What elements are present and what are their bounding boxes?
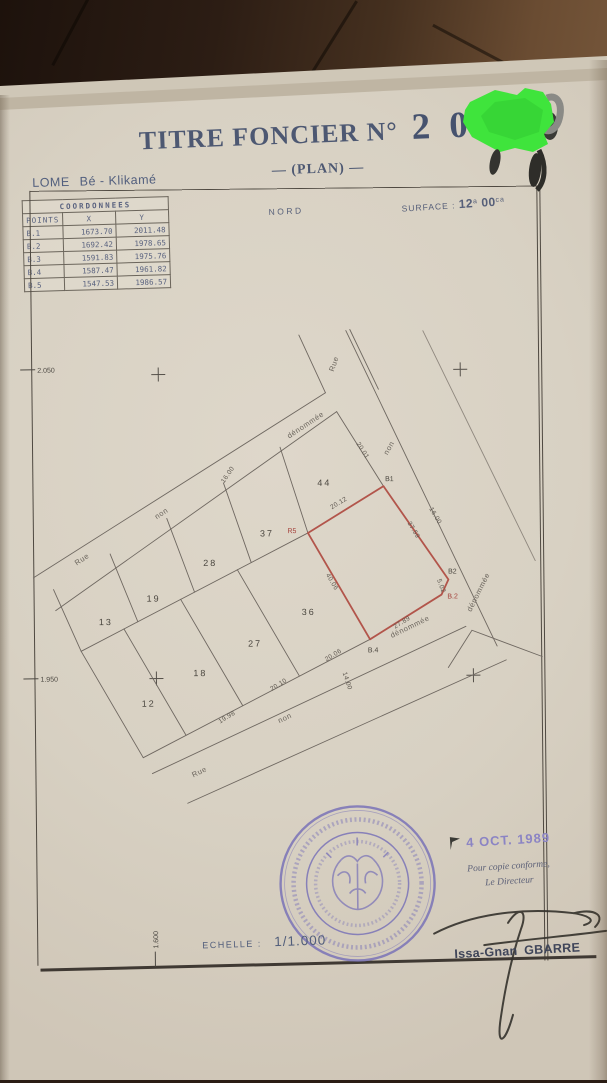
parcel-36: 36 (302, 607, 316, 617)
photographed-document-scene: TITRE FONCIER N° 2 0 — (PLAN) — LOMEBé -… (0, 0, 607, 1080)
street-non-bottom: non (276, 711, 293, 725)
parcel-grid-lines (31, 328, 544, 805)
certification-lines: Pour copie conforme, Le Directeur (451, 856, 568, 894)
signature-scribble (424, 892, 607, 1079)
corner-r5: R5 (287, 528, 296, 535)
parcel-12: 12 (142, 699, 156, 709)
parcel-27: 27 (248, 638, 262, 648)
corner-b4: B.4 (368, 647, 379, 654)
parcel-37: 37 (260, 528, 274, 538)
corner-b2-bis: B.2 (447, 593, 458, 600)
scale-value: 1/1.000 (274, 932, 326, 949)
measure-16-00-depth: 16.00 (220, 465, 236, 484)
street-name-labels: Rue non dénommée Rue non dénommée dénomm… (71, 353, 494, 780)
measure-19-98: 19.98 (217, 710, 236, 726)
green-redaction-blob (455, 82, 585, 202)
title-label: TITRE FONCIER N° (138, 116, 398, 156)
scale-label: ECHELLE : (202, 939, 262, 951)
measure-20-01: 20.01 (354, 441, 370, 460)
measure-37-59: 37.59 (406, 520, 421, 539)
parcel-19: 19 (147, 593, 161, 603)
measure-20-10: 20.10 (269, 677, 288, 693)
ink-drip (487, 148, 502, 176)
measure-14-00: 14.00 (341, 671, 353, 691)
parcel-44: 44 (317, 478, 331, 488)
street-rue-top: Rue (327, 355, 341, 373)
grid-ref-2050: 2.050 (37, 368, 55, 375)
sheet-edge-shadow (0, 95, 10, 1080)
floor-tile-grout (51, 0, 91, 66)
parcel-13: 13 (99, 617, 113, 627)
document-title: TITRE FONCIER N° 2 0 (138, 104, 474, 160)
sheet-edge-shadow (581, 60, 607, 1080)
measure-5-02: 5.02 (435, 578, 447, 594)
parcel-28: 28 (203, 558, 217, 568)
street-rue-bottom: Rue (190, 764, 208, 779)
plan-subtitle: — (PLAN) — (248, 159, 388, 180)
stamp-coat-of-arms (326, 837, 389, 910)
grid-ref-1600: 1.600 (153, 931, 160, 949)
boundary-corner-labels: B1 R5 B2 B.2 B.4 (287, 475, 459, 655)
corner-b2: B2 (448, 568, 457, 575)
grid-ref-1950: 1.950 (40, 677, 58, 684)
parcel-18: 18 (193, 668, 207, 678)
street-rue-upper: Rue (73, 551, 91, 567)
measure-16-00-street: 16.00 (427, 506, 442, 525)
corner-b1: B1 (385, 476, 394, 483)
flag-mark-icon (449, 835, 462, 851)
street-non-right: non (381, 439, 396, 456)
